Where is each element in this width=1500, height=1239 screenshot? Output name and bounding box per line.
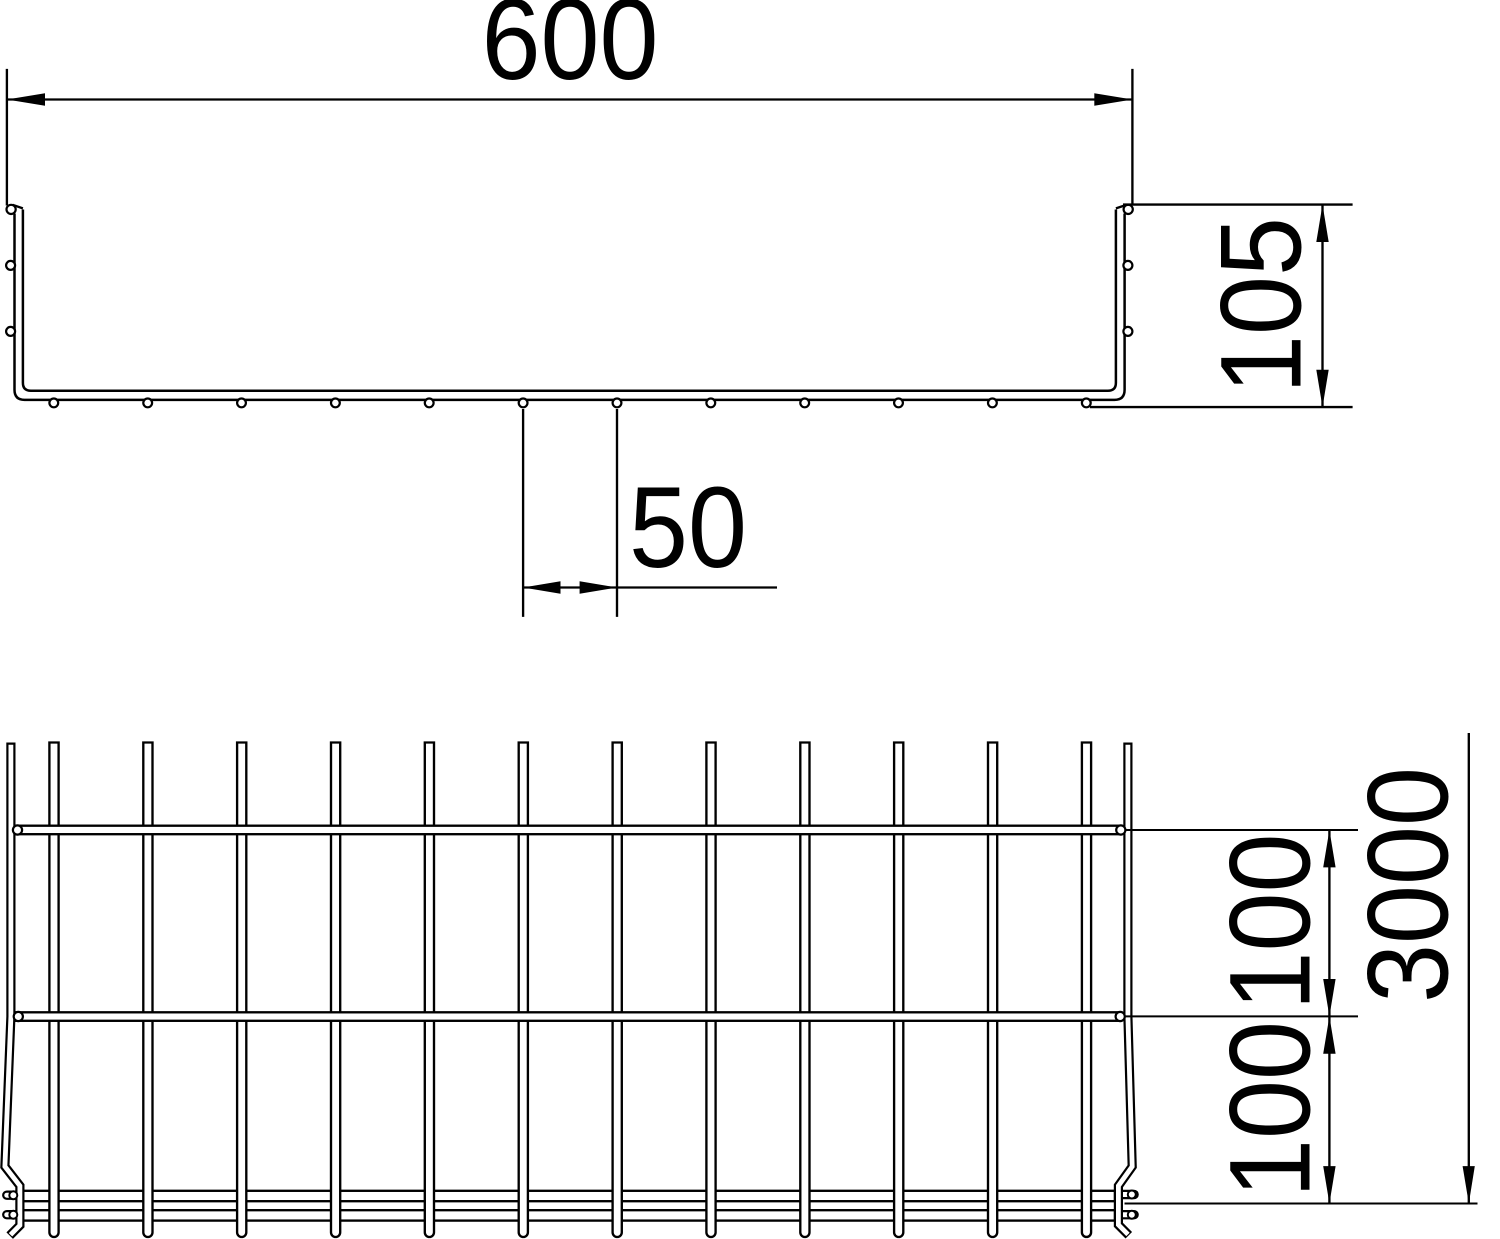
- svg-text:50: 50: [629, 464, 747, 592]
- svg-text:100: 100: [1207, 1021, 1335, 1198]
- svg-text:600: 600: [482, 0, 659, 104]
- svg-text:100: 100: [1207, 834, 1335, 1011]
- svg-text:3000: 3000: [1345, 767, 1473, 1003]
- svg-text:105: 105: [1198, 217, 1326, 394]
